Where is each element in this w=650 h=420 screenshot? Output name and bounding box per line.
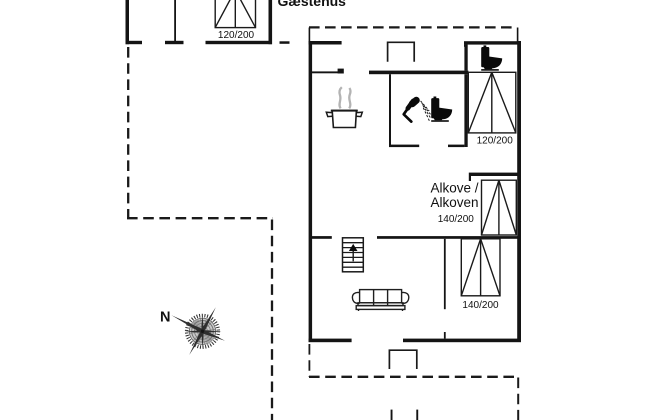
svg-text:N: N [160,310,170,326]
svg-text:Alkoven: Alkoven [430,195,478,210]
svg-text:140/200: 140/200 [438,214,475,225]
svg-text:120/200: 120/200 [218,30,255,41]
svg-text:Alkove /: Alkove / [430,181,478,196]
svg-text:140/200: 140/200 [462,300,499,311]
svg-text:120/200: 120/200 [477,135,514,146]
svg-text:Gæstehus: Gæstehus [278,0,347,9]
